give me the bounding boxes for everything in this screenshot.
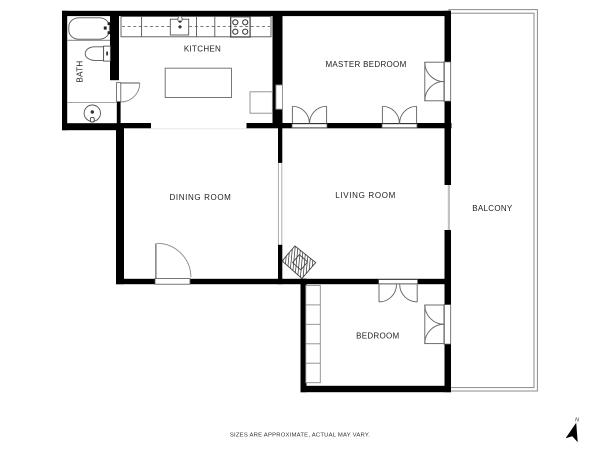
- svg-text:MASTER BEDROOM: MASTER BEDROOM: [325, 60, 406, 69]
- svg-text:N: N: [575, 418, 579, 424]
- svg-text:LIVING ROOM: LIVING ROOM: [335, 191, 396, 200]
- svg-text:SIZES ARE APPROXIMATE, ACTUAL: SIZES ARE APPROXIMATE, ACTUAL MAY VARY.: [230, 433, 370, 439]
- svg-text:DINING ROOM: DINING ROOM: [170, 193, 232, 202]
- svg-text:BEDROOM: BEDROOM: [356, 331, 399, 340]
- svg-text:BATH: BATH: [76, 61, 85, 83]
- svg-text:KITCHEN: KITCHEN: [184, 45, 221, 54]
- svg-text:BALCONY: BALCONY: [472, 204, 513, 213]
